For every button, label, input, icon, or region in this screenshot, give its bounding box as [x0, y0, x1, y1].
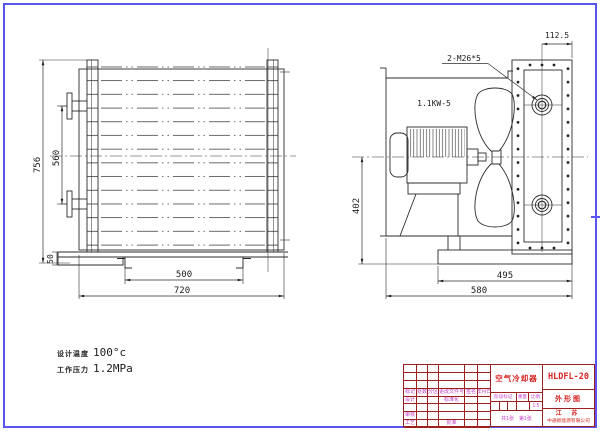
- blank-cell: [404, 373, 417, 381]
- work-pressure-row: 工作压力 1.2MPa: [57, 362, 133, 375]
- stage-box: [508, 402, 517, 410]
- role-process: 工艺: [404, 420, 417, 428]
- weight-value: [517, 402, 530, 410]
- dim-500: 500: [176, 270, 192, 280]
- stage-header-row: 阶段标记 重量 比例: [491, 393, 542, 402]
- dim-580: 580: [471, 286, 487, 296]
- revision-row: [404, 381, 490, 389]
- product-name: 空气冷却器: [491, 365, 542, 393]
- dim-495: 495: [497, 271, 513, 281]
- role-approve: 批准: [439, 420, 465, 428]
- blank-cell: [478, 404, 490, 412]
- blank-cell: [428, 373, 439, 381]
- blank-cell: [478, 412, 490, 420]
- blank-cell: [465, 365, 478, 373]
- sheet-index: 第1张: [519, 415, 532, 422]
- work-pressure-label: 工作压力: [57, 365, 93, 375]
- dim-112-5: 112.5: [545, 31, 569, 40]
- company-name: 中通新能源有限公司: [547, 418, 590, 424]
- dim-756: 756: [33, 157, 43, 173]
- blank-cell: [439, 404, 465, 412]
- design-row: 设计 标准化: [404, 397, 490, 405]
- blank-cell: [478, 373, 490, 381]
- rev-header-zone: 分区: [428, 389, 439, 397]
- thread-note-label: 2-M26*5: [447, 54, 481, 63]
- sheet-name: 外形图: [543, 390, 594, 409]
- blank-cell: [417, 404, 428, 412]
- design-temp-label: 设计温度: [57, 349, 93, 359]
- title-block-middle: 空气冷却器 阶段标记 重量 比例 1:5 共1张 第1张: [491, 365, 543, 426]
- stage-box: [491, 402, 500, 410]
- sheet-count-row: 共1张 第1张: [491, 411, 542, 426]
- blank-cell: [478, 397, 490, 405]
- rev-header-doc: 更改文件号: [439, 389, 465, 397]
- dim-402: 402: [352, 198, 362, 214]
- title-block: 标记 处数 分区 更改文件号 签名 年月日 设计 标准化 审核 工艺: [403, 364, 595, 427]
- stage-box: [500, 402, 509, 410]
- spec-notes: 设计温度 100°c 工作压力 1.2MPa: [57, 346, 133, 378]
- front-view: 756 560 50 500 720: [33, 48, 296, 299]
- blank-cell: [478, 420, 490, 428]
- coil-side-panel: [512, 44, 572, 254]
- blank-cell: [428, 397, 439, 405]
- blank-cell: [417, 373, 428, 381]
- blank-cell: [417, 365, 428, 373]
- blank-cell: [439, 381, 465, 389]
- sheets-total: 共1张: [501, 415, 514, 422]
- blank-cell: [404, 365, 417, 373]
- blank-cell: [428, 412, 439, 420]
- blank-cell: [428, 365, 439, 373]
- review-row: 审核: [404, 412, 490, 420]
- blank-cell: [404, 381, 417, 389]
- dim-50: 50: [46, 254, 55, 264]
- weight-label: 重量: [517, 393, 530, 401]
- revision-header-row: 标记 处数 分区 更改文件号 签名 年月日: [404, 389, 490, 397]
- blank-cell: [439, 373, 465, 381]
- blank-cell: [465, 412, 478, 420]
- rev-header-count: 处数: [417, 389, 428, 397]
- base-plate: [438, 236, 572, 264]
- blank-cell: [439, 412, 465, 420]
- model-number: HLDFL-20: [543, 365, 594, 390]
- fan-blades: [475, 88, 514, 227]
- blank-row: [404, 404, 490, 412]
- blank-cell: [428, 404, 439, 412]
- title-block-right: HLDFL-20 外形图 江 苏 中通新能源有限公司: [543, 365, 594, 426]
- design-temp-value: 100°c: [93, 346, 126, 359]
- dim-720: 720: [174, 286, 190, 296]
- blank-cell: [417, 397, 428, 405]
- role-design: 设计: [404, 397, 417, 405]
- blank-cell: [465, 373, 478, 381]
- blank-cell: [465, 397, 478, 405]
- rev-header-sign: 签名: [465, 389, 478, 397]
- motor-pedestal: [400, 183, 460, 236]
- blank-cell: [417, 381, 428, 389]
- blank-cell: [417, 412, 428, 420]
- blank-cell: [417, 420, 428, 428]
- motor-power-label: 1.1KW-5: [417, 99, 451, 108]
- revision-grid: 标记 处数 分区 更改文件号 签名 年月日 设计 标准化 审核 工艺: [404, 365, 491, 426]
- revision-row: [404, 373, 490, 381]
- stage-mark-label: 阶段标记: [491, 393, 517, 401]
- blank-cell: [465, 381, 478, 389]
- dim-560: 560: [52, 150, 62, 166]
- company-region: 江 苏: [556, 411, 582, 418]
- blank-cell: [404, 404, 417, 412]
- drawing-sheet: 756 560 50 500 720: [0, 0, 600, 431]
- blank-cell: [428, 420, 439, 428]
- blank-cell: [465, 404, 478, 412]
- work-pressure-value: 1.2MPa: [93, 362, 133, 375]
- side-view: 112.5 402 495 580 1.1KW-5 2-M26*5: [352, 31, 588, 299]
- rev-header-date: 年月日: [478, 389, 490, 397]
- blank-cell: [465, 420, 478, 428]
- rev-header-mark: 标记: [404, 389, 417, 397]
- company-block: 江 苏 中通新能源有限公司: [543, 409, 594, 426]
- process-row: 工艺 批准: [404, 420, 490, 428]
- revision-row: [404, 365, 490, 373]
- scale-label: 比例: [529, 393, 542, 401]
- role-review: 审核: [404, 412, 417, 420]
- blank-cell: [478, 381, 490, 389]
- blank-cell: [428, 381, 439, 389]
- blank-cell: [478, 365, 490, 373]
- front-view-base: [58, 252, 288, 268]
- role-standardize: 标准化: [439, 397, 465, 405]
- stage-value-row: 1:5: [491, 402, 542, 411]
- scale-value: 1:5: [530, 402, 542, 410]
- blank-cell: [439, 365, 465, 373]
- design-temp-row: 设计温度 100°c: [57, 346, 133, 359]
